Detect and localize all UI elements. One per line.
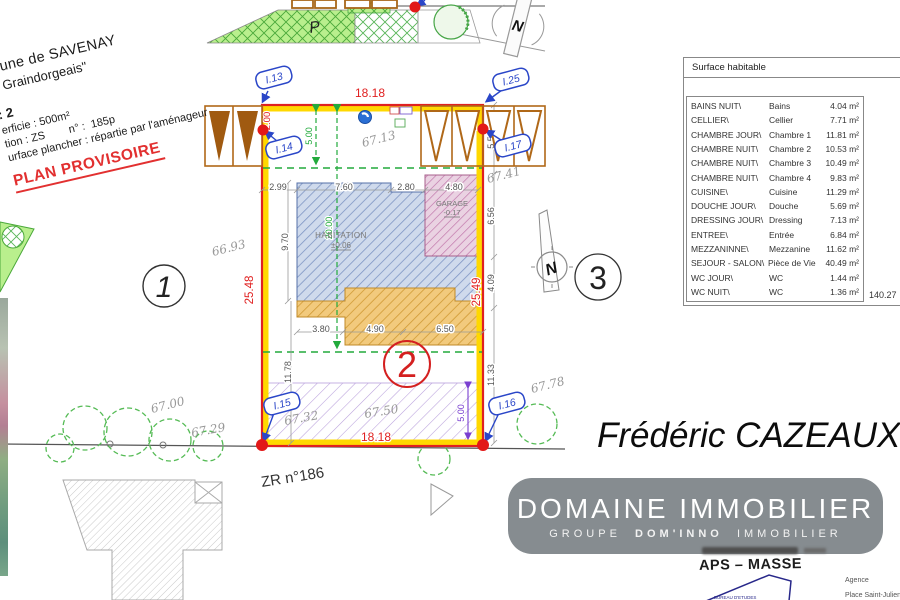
parking-area-hatched — [355, 10, 418, 43]
room-code: CELLIER\ — [691, 115, 769, 125]
lot-2-number: 2 — [397, 344, 417, 385]
dim-width-top: 18.18 — [355, 86, 385, 100]
dim-rear-left: 11.78 — [283, 361, 293, 383]
dim-front-1: 2.99 — [269, 182, 287, 192]
utility-box-green — [395, 119, 405, 127]
dim-front-3: 2.80 — [397, 182, 415, 192]
room-code: WC NUIT\ — [691, 287, 769, 297]
garage-label: GARAGE — [436, 199, 468, 208]
room-area: 7.13 m² — [815, 215, 859, 225]
dim-front-4: 4.80 — [445, 182, 463, 192]
lot-3-number: 3 — [589, 260, 607, 296]
table-row: WC JOUR\ WC 1.44 m² — [687, 270, 863, 284]
room-area: 11.62 m² — [815, 244, 859, 254]
dim-right-mid: 6.56 — [486, 207, 496, 225]
room-code: ENTREE\ — [691, 230, 769, 240]
point-label-i25: I.25 — [491, 67, 530, 93]
room-area: 11.29 m² — [815, 187, 859, 197]
utility-box-red — [390, 107, 399, 114]
point-label-i14: I.14 — [264, 135, 303, 161]
room-name: Chambre 1 — [769, 130, 815, 140]
brand-banner: DOMAINE IMMOBILIER GROUPE DOM'INNO IMMOB… — [508, 478, 883, 554]
parcel-reference: ZR n°186 — [260, 464, 325, 491]
table-row: CHAMBRE NUIT\ Chambre 3 10.49 m² — [687, 156, 863, 170]
room-name: Mezzanine — [769, 244, 815, 254]
room-code: CHAMBRE JOUR\ — [691, 130, 769, 140]
point-arrow — [487, 90, 502, 101]
obscured-text-bar — [804, 548, 826, 553]
room-area: 9.83 m² — [815, 173, 859, 183]
room-code: CUISINE\ — [691, 187, 769, 197]
room-name: Chambre 3 — [769, 158, 815, 168]
planter-box — [345, 0, 370, 8]
agency-label: Agence — [845, 577, 869, 584]
table-row: CELLIER\ Cellier 7.71 m² — [687, 113, 863, 127]
room-code: WC JOUR\ — [691, 273, 769, 283]
habitation-level: ±0.06 — [331, 241, 352, 250]
room-name: Bains — [769, 101, 815, 111]
dim-rear-1: 3.80 — [312, 324, 330, 334]
spot-elevation: 67.00 — [149, 394, 186, 416]
room-area: 5.69 m² — [815, 201, 859, 211]
room-name: Entrée — [769, 230, 815, 240]
spot-elevation: 67.78 — [529, 374, 566, 396]
obscured-text-bar — [702, 547, 798, 554]
room-name: Cellier — [769, 115, 815, 125]
table-row: CHAMBRE JOUR\ Chambre 1 11.81 m² — [687, 128, 863, 142]
point-arrow — [486, 413, 499, 440]
spot-elevation: 67.41 — [485, 164, 522, 186]
brand-name: DOMAINE IMMOBILIER — [517, 493, 874, 525]
dim-right-lower: 4.09 — [486, 274, 496, 292]
room-name: Douche — [769, 201, 815, 211]
room-code: CHAMBRE NUIT\ — [691, 158, 769, 168]
room-code: BAINS NUIT\ — [691, 101, 769, 111]
table-row: WC NUIT\ WC 1.36 m² — [687, 285, 863, 299]
room-area: 6.84 m² — [815, 230, 859, 240]
dim-rear-right: 11.33 — [486, 364, 496, 386]
table-row: SEJOUR - SALON\ Pièce de Vie 40.49 m² — [687, 256, 863, 270]
room-code: SEJOUR - SALON\ — [691, 258, 768, 268]
room-area: 4.04 m² — [815, 101, 859, 111]
room-code: CHAMBRE NUIT\ — [691, 144, 769, 154]
room-name: Cuisine — [769, 187, 815, 197]
room-area: 1.44 m² — [815, 273, 859, 283]
dim-rear-strip: 5.00 — [456, 404, 466, 422]
brand-subtitle: GROUPE DOM'INNO IMMOBILIER — [549, 528, 842, 540]
surface-table: Surface habitable BAINS NUIT\ Bains 4.04… — [683, 57, 900, 307]
room-name: Chambre 2 — [769, 144, 815, 154]
room-area: 7.71 m² — [815, 115, 859, 125]
table-row: ENTREE\ Entrée 6.84 m² — [687, 228, 863, 242]
room-code: DOUCHE JOUR\ — [691, 201, 769, 211]
bureau-etudes-label: BUREAU D'ETUDES — [714, 595, 756, 600]
table-row: BAINS NUIT\ Bains 4.04 m² — [687, 99, 863, 113]
brand-suffix: IMMOBILIER — [737, 528, 842, 540]
room-area: 40.49 m² — [816, 258, 859, 268]
agency-address: Place Saint-Julien 58 — [845, 592, 900, 599]
planter-box — [372, 0, 397, 8]
tree-icon — [2, 226, 24, 248]
surface-table-body: BAINS NUIT\ Bains 4.04 m² CELLIER\ Celli… — [686, 96, 864, 302]
room-area: 11.81 m² — [815, 130, 859, 140]
spot-elevation: 67.29 — [190, 420, 227, 440]
street-edge-line — [455, 33, 545, 51]
surface-total: 140.27 — [869, 290, 897, 300]
table-row: DRESSING JOUR\ Dressing 7.13 m² — [687, 213, 863, 227]
table-row: CHAMBRE NUIT\ Chambre 2 10.53 m² — [687, 142, 863, 156]
room-name: Dressing — [769, 215, 815, 225]
dim-width-bottom: 18.18 — [361, 430, 391, 444]
room-area: 1.36 m² — [815, 287, 859, 297]
table-row: CHAMBRE NUIT\ Chambre 4 9.83 m² — [687, 170, 863, 184]
surface-table-divider — [683, 77, 900, 78]
dim-house-left: 9.70 — [280, 233, 290, 251]
habitation-label: HABITATION — [315, 231, 367, 240]
dim-rear-2: 4.90 — [366, 324, 384, 334]
room-code: CHAMBRE NUIT\ — [691, 173, 769, 183]
brand-group-name: DOM'INNO — [635, 528, 723, 540]
north-compass-right: N — [531, 210, 573, 292]
planter-box — [315, 0, 336, 8]
dim-front-2: 7.60 — [335, 182, 353, 192]
spot-elevation: 66.93 — [210, 237, 247, 259]
surface-table-title: Surface habitable — [692, 62, 766, 73]
lot-1-number: 1 — [156, 271, 173, 304]
room-name: Chambre 4 — [769, 173, 815, 183]
north-compass-top: N — [485, 0, 550, 61]
room-area: 10.49 m² — [815, 158, 859, 168]
dim-rear-3: 6.50 — [436, 324, 454, 334]
photo-edge-sliver — [0, 298, 8, 576]
garage-level: -0.17 — [443, 208, 460, 217]
room-name: Pièce de Vie — [768, 258, 816, 268]
room-name: WC — [769, 287, 815, 297]
aps-masse-name: APS – MASSE — [699, 556, 802, 574]
plan-page: P N 1 3 — [0, 0, 900, 600]
boundary-point-dot — [410, 2, 421, 13]
room-code: MEZZANINNE\ — [691, 244, 769, 254]
room-area: 10.53 m² — [815, 144, 859, 154]
dim-depth-left: 25.48 — [244, 276, 256, 305]
table-row: CUISINE\ Cuisine 11.29 m² — [687, 185, 863, 199]
brand-group: GROUPE — [549, 528, 621, 540]
agent-signature: Frédéric CAZEAUX — [597, 416, 900, 456]
table-row: MEZZANINNE\ Mezzanine 11.62 m² — [687, 242, 863, 256]
utility-box-purple — [400, 107, 412, 114]
spot-elevation: 67.13 — [360, 128, 397, 150]
aps-masse-logo: BUREAU D'ETUDES — [706, 575, 791, 600]
flag-symbol — [431, 484, 453, 515]
table-row: DOUCHE JOUR\ Douche 5.69 m² — [687, 199, 863, 213]
room-code: DRESSING JOUR\ — [691, 215, 769, 225]
room-name: WC — [769, 273, 815, 283]
dim-front-setback: 5.00 — [304, 127, 314, 145]
dim-depth-right: 25.49 — [471, 278, 483, 307]
